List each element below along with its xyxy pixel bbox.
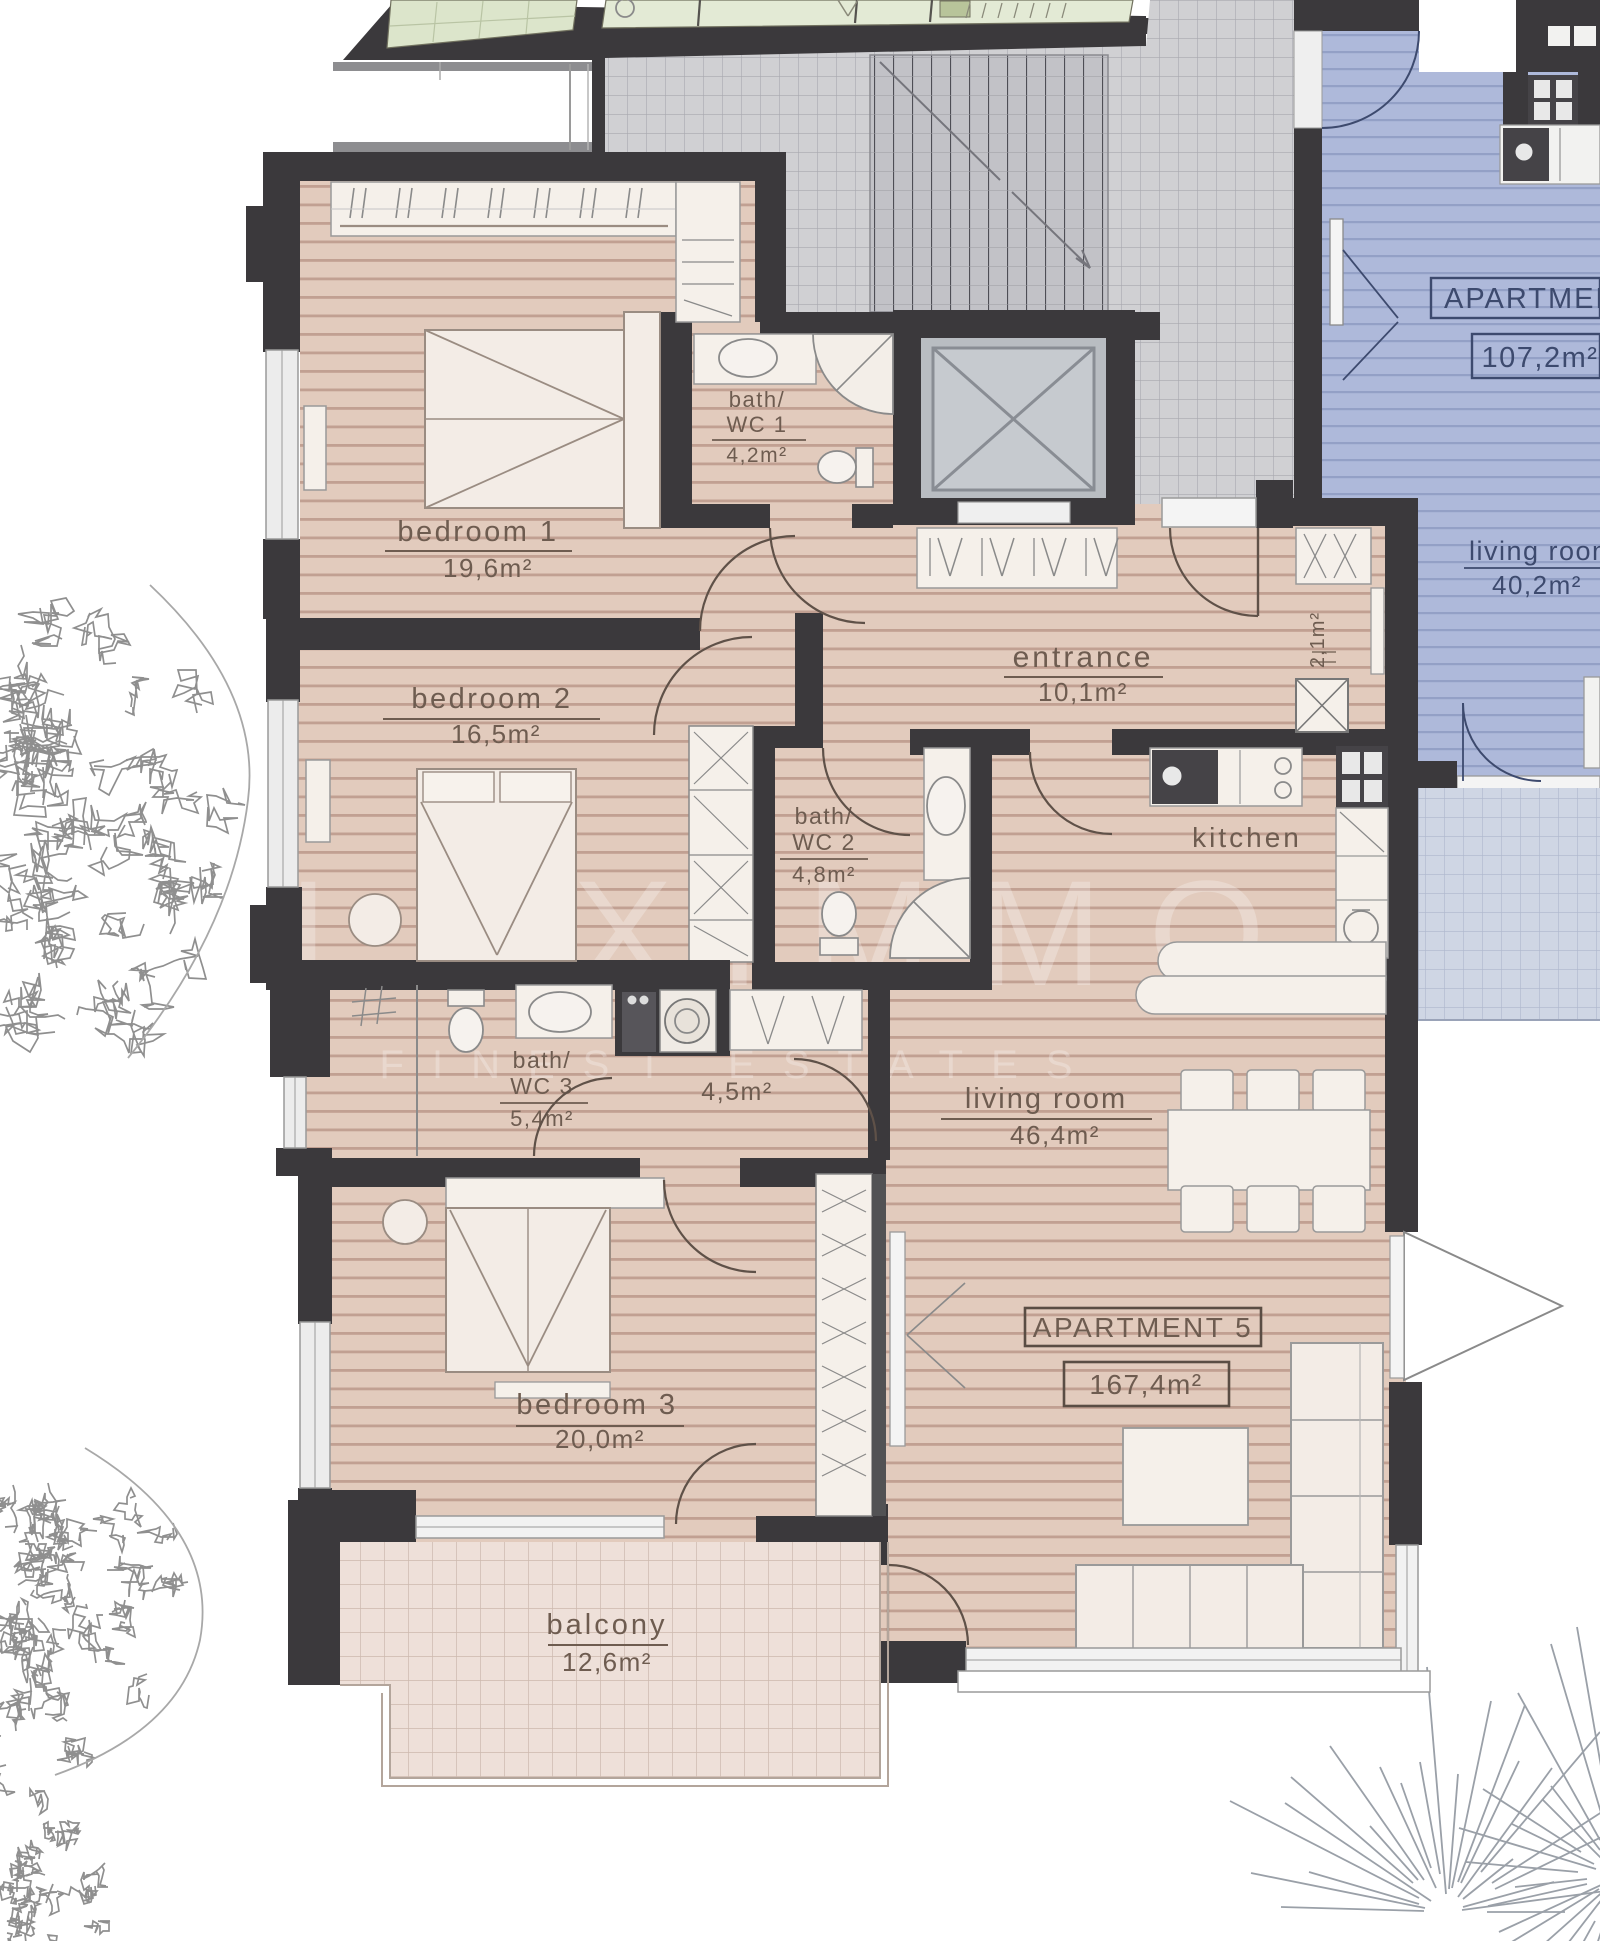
svg-text:bath/: bath/ [513, 1047, 572, 1073]
svg-text:167,4m²: 167,4m² [1089, 1369, 1202, 1400]
svg-text:APARTMENT 5: APARTMENT 5 [1033, 1312, 1253, 1343]
svg-text:bedroom 2: bedroom 2 [411, 683, 572, 715]
svg-text:4,8m²: 4,8m² [792, 862, 856, 887]
svg-text:46,4m²: 46,4m² [1010, 1120, 1100, 1150]
svg-text:10,1m²: 10,1m² [1038, 677, 1128, 707]
svg-text:4,5m²: 4,5m² [701, 1078, 772, 1106]
svg-text:19,6m²: 19,6m² [443, 553, 533, 583]
svg-text:4,2m²: 4,2m² [726, 444, 787, 467]
svg-text:WC 2: WC 2 [792, 829, 856, 855]
svg-text:16,5m²: 16,5m² [451, 719, 541, 749]
svg-text:kitchen: kitchen [1192, 822, 1302, 853]
svg-text:5,4m²: 5,4m² [510, 1106, 574, 1131]
svg-text:living room: living room [965, 1083, 1127, 1115]
svg-text:APARTMENT 6: APARTMENT 6 [1444, 283, 1600, 315]
svg-text:living room: living room [1469, 536, 1600, 566]
svg-text:bedroom 1: bedroom 1 [397, 516, 558, 548]
svg-text:20,0m²: 20,0m² [555, 1424, 645, 1454]
svg-text:2,1m²: 2,1m² [1307, 612, 1329, 668]
svg-text:balcony: balcony [547, 1609, 668, 1641]
svg-text:12,6m²: 12,6m² [562, 1647, 652, 1677]
svg-text:107,2m²: 107,2m² [1482, 342, 1599, 374]
svg-text:bath/: bath/ [729, 387, 785, 412]
svg-text:bedroom 3: bedroom 3 [516, 1389, 677, 1421]
svg-text:40,2m²: 40,2m² [1492, 570, 1582, 600]
svg-text:WC 1: WC 1 [727, 412, 788, 437]
svg-text:entrance: entrance [1013, 641, 1154, 674]
